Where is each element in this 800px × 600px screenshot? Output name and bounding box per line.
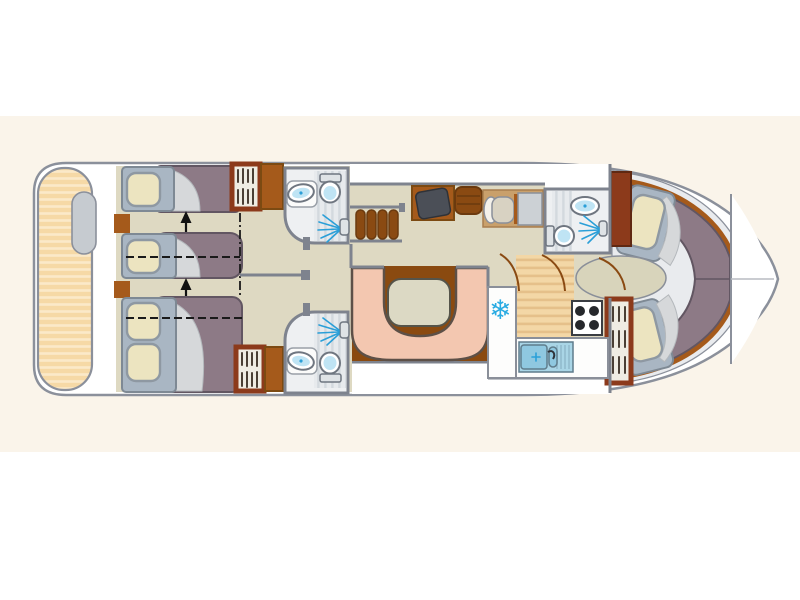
wall-cap bbox=[399, 203, 405, 212]
snowflake-icon: ❄ bbox=[489, 295, 512, 326]
toilet bbox=[546, 226, 574, 246]
pillow bbox=[127, 173, 160, 206]
aft-deck bbox=[38, 168, 96, 390]
bed-double-bottom bbox=[122, 297, 242, 392]
step-bar bbox=[389, 210, 398, 239]
aft-deck-step bbox=[72, 192, 96, 254]
wardrobe-hanging-top bbox=[232, 164, 260, 209]
helm-panel bbox=[415, 187, 451, 219]
washbasin bbox=[571, 197, 599, 215]
bedside-floor-strip-1 bbox=[114, 214, 130, 233]
sink-unit bbox=[519, 342, 573, 372]
wall-cap bbox=[301, 270, 310, 280]
pillow bbox=[127, 303, 160, 340]
stove bbox=[572, 301, 602, 335]
cabinet-bottom bbox=[265, 347, 283, 391]
saloon-table bbox=[388, 279, 450, 326]
wardrobe-frame bbox=[236, 347, 264, 391]
chart-table bbox=[518, 193, 542, 225]
wardrobe-frame bbox=[232, 164, 260, 209]
toilet bbox=[320, 353, 341, 383]
toilet bbox=[320, 174, 341, 203]
door-stub-top bbox=[303, 237, 310, 250]
cabinet-top bbox=[261, 164, 283, 209]
galley-steps-floor bbox=[516, 255, 574, 342]
bed-single-middle bbox=[122, 233, 242, 278]
bathroom-top bbox=[285, 168, 349, 243]
bathroom-bottom bbox=[285, 312, 349, 393]
bedside-floor-strip-2 bbox=[114, 281, 130, 298]
step-bar bbox=[356, 210, 365, 239]
fridge-cabinet: ❄ bbox=[488, 287, 516, 378]
pillow bbox=[127, 344, 160, 381]
aft-cabins bbox=[114, 166, 242, 392]
step-bar bbox=[378, 210, 387, 239]
wardrobe-hanging-bottom bbox=[236, 347, 264, 391]
bed-single-top bbox=[122, 166, 240, 212]
door-stub-bottom bbox=[303, 303, 310, 316]
helm-seat bbox=[455, 187, 482, 214]
boat-floorplan: ❄ bbox=[0, 0, 800, 600]
bathroom-front bbox=[545, 189, 610, 253]
nav-chair bbox=[484, 197, 514, 223]
step-bar bbox=[367, 210, 376, 239]
bow-wardrobe-top bbox=[611, 172, 631, 246]
